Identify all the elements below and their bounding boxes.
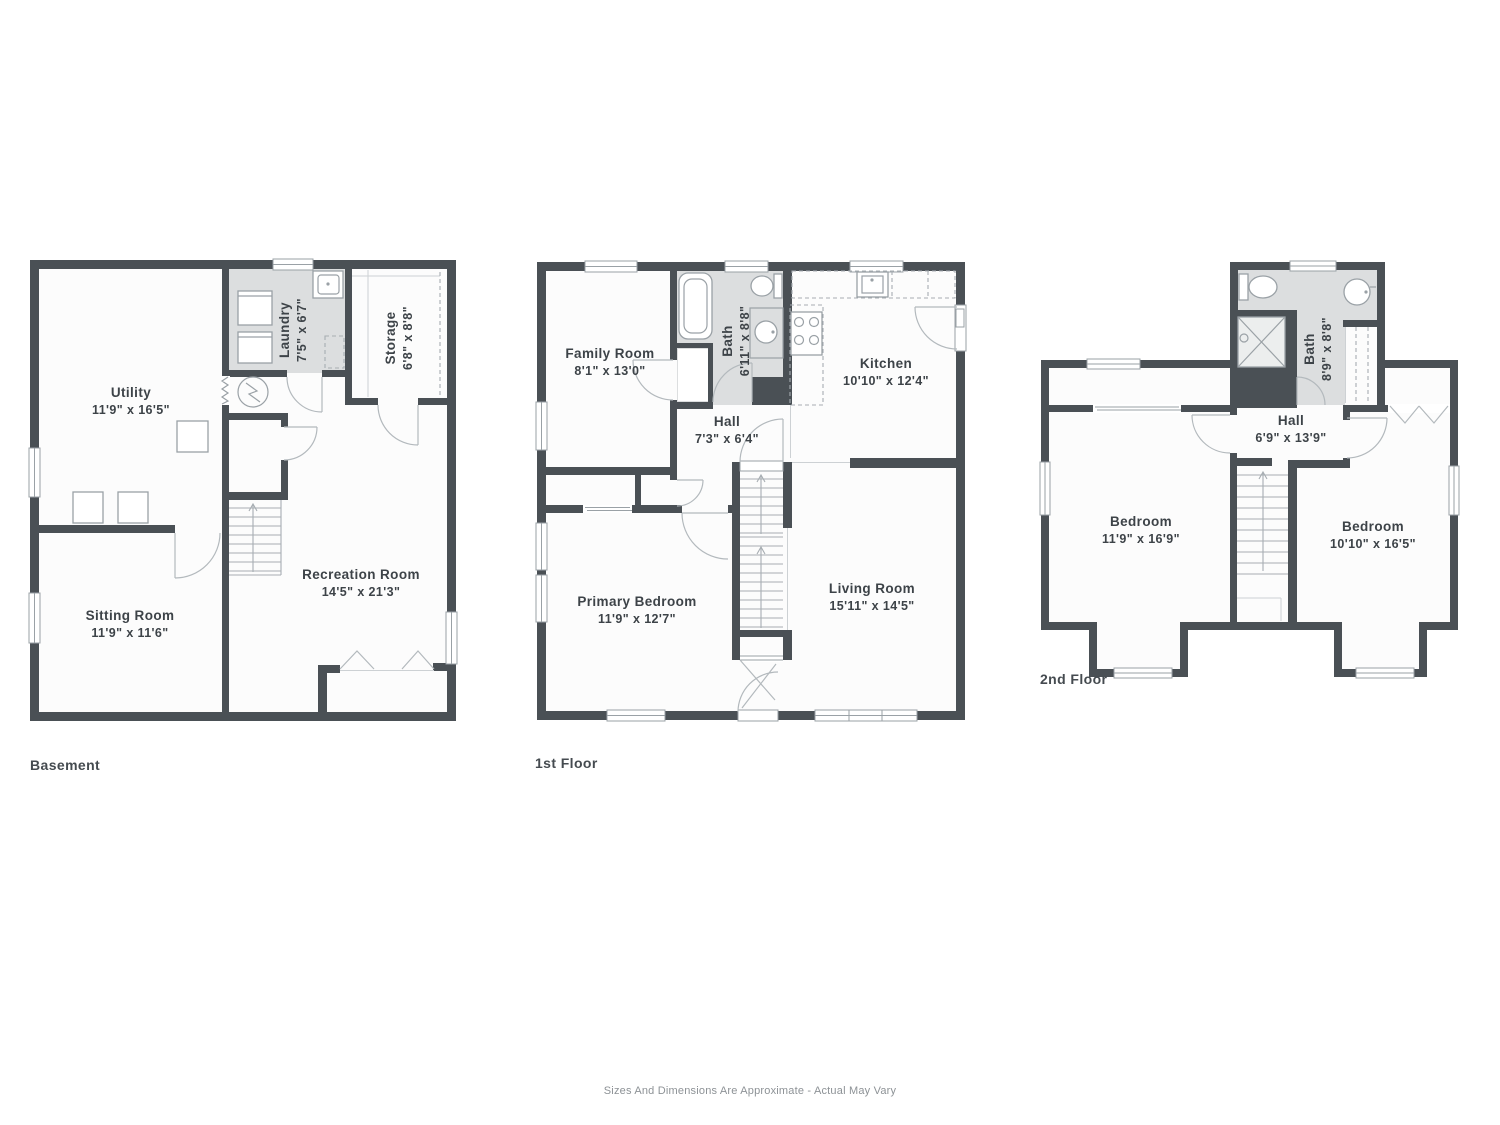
room-name: Recreation Room xyxy=(302,566,420,584)
room-name: Bedroom xyxy=(1102,513,1180,531)
room-label-hall-1st: Hall 7'3" x 6'4" xyxy=(695,413,759,447)
washer-icon xyxy=(238,291,272,325)
utility-equipment-icon xyxy=(118,492,148,523)
stove-icon xyxy=(791,312,822,355)
room-dims: 6'9" x 13'9" xyxy=(1255,430,1326,447)
room-label-living-room: Living Room 15'11" x 14'5" xyxy=(829,580,915,614)
room-name: Kitchen xyxy=(843,355,929,373)
kitchen-sink-icon xyxy=(857,272,888,297)
room-dims: 8'1" x 13'0" xyxy=(565,363,654,380)
room-label-kitchen: Kitchen 10'10" x 12'4" xyxy=(843,355,929,389)
floorplan-page: Utility 11'9" x 16'5" Laundry 7'5" x 6'7… xyxy=(0,0,1500,1125)
room-dims: 10'10" x 16'5" xyxy=(1330,536,1416,553)
toilet-icon xyxy=(751,274,782,298)
room-name: Hall xyxy=(1255,412,1326,430)
room-name: Sitting Room xyxy=(86,607,175,625)
utility-equipment-icon xyxy=(177,421,208,452)
floor-title-1st-floor: 1st Floor xyxy=(535,755,598,771)
toilet-icon xyxy=(1239,274,1277,300)
room-name: Hall xyxy=(695,413,759,431)
room-label-bedroom-left: Bedroom 11'9" x 16'9" xyxy=(1102,513,1180,547)
room-label-primary-bedroom: Primary Bedroom 11'9" x 12'7" xyxy=(577,593,696,627)
room-dims: 6'11" x 8'8" xyxy=(737,306,754,377)
room-name: Bedroom xyxy=(1330,518,1416,536)
room-dims: 15'11" x 14'5" xyxy=(829,598,915,615)
utility-equipment-icon xyxy=(73,492,103,523)
room-name: Primary Bedroom xyxy=(577,593,696,611)
shower-icon xyxy=(1238,317,1285,367)
room-dims: 11'9" x 16'5" xyxy=(92,402,170,419)
room-dims: 11'9" x 11'6" xyxy=(86,625,175,642)
disclaimer-text: Sizes And Dimensions Are Approximate - A… xyxy=(0,1085,1500,1097)
laundry-sink-icon xyxy=(313,271,343,298)
room-name: Utility xyxy=(92,384,170,402)
room-label-utility: Utility 11'9" x 16'5" xyxy=(92,384,170,418)
room-label-family-room: Family Room 8'1" x 13'0" xyxy=(565,345,654,379)
room-label-storage: Storage 6'8" x 8'8" xyxy=(382,306,416,370)
floor-title-basement: Basement xyxy=(30,757,100,773)
room-label-bath-1st: Bath 6'11" x 8'8" xyxy=(719,306,753,377)
bathtub-icon xyxy=(679,273,712,339)
room-label-hall-2nd: Hall 6'9" x 13'9" xyxy=(1255,412,1326,446)
room-name: Storage xyxy=(382,306,400,370)
room-label-recreation-room: Recreation Room 14'5" x 21'3" xyxy=(302,566,420,600)
room-label-bath-2nd: Bath 8'9" x 8'8" xyxy=(1301,317,1335,381)
room-dims: 6'8" x 8'8" xyxy=(400,306,417,370)
room-dims: 11'9" x 16'9" xyxy=(1102,531,1180,548)
electrical-panel-icon xyxy=(221,376,230,405)
room-dims: 11'9" x 12'7" xyxy=(577,611,696,628)
room-name: Living Room xyxy=(829,580,915,598)
room-label-laundry: Laundry 7'5" x 6'7" xyxy=(276,298,310,362)
room-name: Family Room xyxy=(565,345,654,363)
room-label-sitting-room: Sitting Room 11'9" x 11'6" xyxy=(86,607,175,641)
room-name: Laundry xyxy=(276,298,294,362)
room-dims: 8'9" x 8'8" xyxy=(1319,317,1336,381)
room-dims: 14'5" x 21'3" xyxy=(302,584,420,601)
room-name: Bath xyxy=(1301,317,1319,381)
room-dims: 7'5" x 6'7" xyxy=(294,298,311,362)
room-label-bedroom-right: Bedroom 10'10" x 16'5" xyxy=(1330,518,1416,552)
room-dims: 7'3" x 6'4" xyxy=(695,431,759,448)
room-name: Bath xyxy=(719,306,737,377)
floorplan-drawing xyxy=(0,0,1500,1125)
floor-title-2nd-floor: 2nd Floor xyxy=(1040,671,1107,687)
second-floor-plan xyxy=(1040,261,1459,678)
room-dims: 10'10" x 12'4" xyxy=(843,373,929,390)
dryer-icon xyxy=(238,332,272,363)
